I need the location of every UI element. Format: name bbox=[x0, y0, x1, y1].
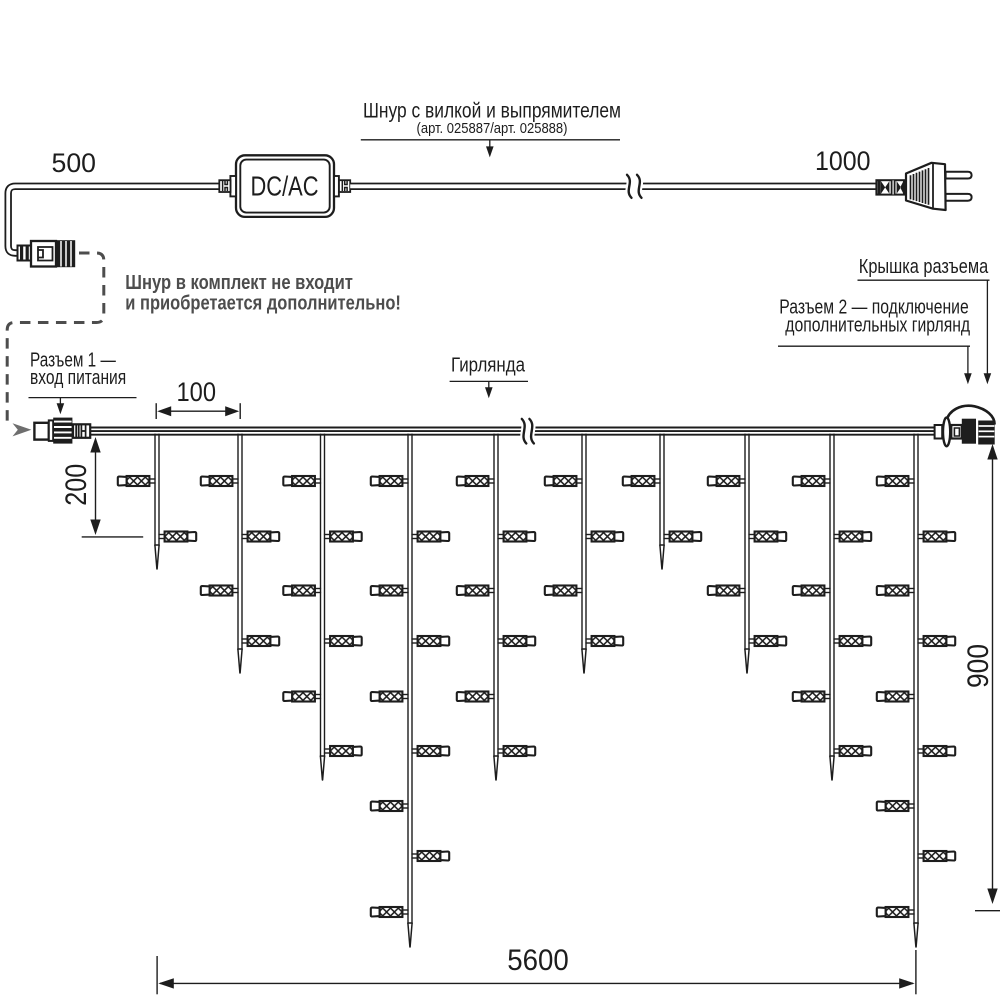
svg-text:1000: 1000 bbox=[815, 146, 871, 176]
svg-text:Шнур в комплект не входит: Шнур в комплект не входит bbox=[125, 272, 353, 294]
svg-text:вход питания: вход питания bbox=[30, 367, 126, 389]
svg-text:дополнительных гирлянд: дополнительных гирлянд bbox=[785, 315, 970, 337]
svg-text:900: 900 bbox=[962, 644, 995, 688]
svg-text:5600: 5600 bbox=[507, 944, 569, 977]
svg-text:Шнур с вилкой и выпрямителем: Шнур с вилкой и выпрямителем bbox=[363, 99, 621, 123]
svg-text:Крышка разъема: Крышка разъема bbox=[859, 256, 989, 278]
svg-text:200: 200 bbox=[60, 464, 93, 506]
svg-text:(арт. 025887/арт. 025888): (арт. 025887/арт. 025888) bbox=[417, 121, 568, 137]
svg-text:100: 100 bbox=[177, 377, 217, 407]
svg-text:DC/AC: DC/AC bbox=[251, 171, 319, 202]
svg-text:Гирлянда: Гирлянда bbox=[451, 355, 526, 377]
svg-text:и приобретается дополнительно!: и приобретается дополнительно! bbox=[125, 292, 401, 314]
svg-text:500: 500 bbox=[52, 148, 97, 178]
